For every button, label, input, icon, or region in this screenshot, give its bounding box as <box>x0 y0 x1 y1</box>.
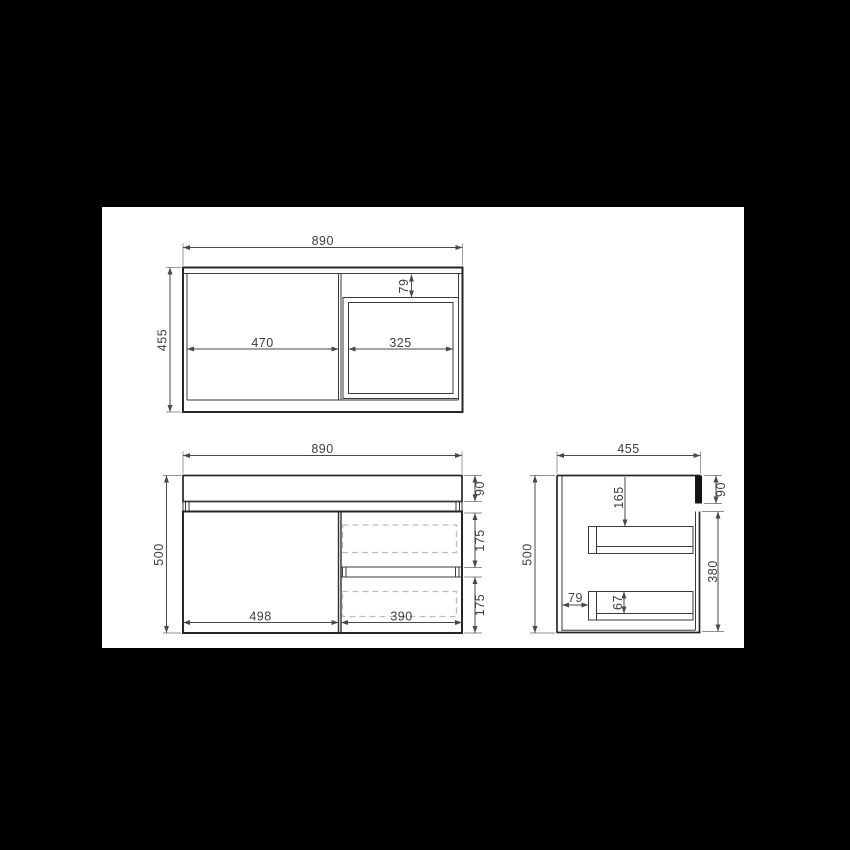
product-dimension-image: 890 455 470 325 79 890 <box>0 0 850 850</box>
lower-drawer-height-label: 175 <box>473 594 487 616</box>
drawer-top-offset-label: 165 <box>612 486 626 508</box>
front-view-height-label: 500 <box>152 543 166 565</box>
copyright-notice: Copyright @ 2025 My Depot Australia. Thi… <box>384 797 838 850</box>
benchtop-edge-profile <box>695 476 702 504</box>
side-view-height-label: 500 <box>521 543 535 565</box>
technical-drawing: 890 455 470 325 79 890 <box>0 0 850 850</box>
benchtop-height-label: 90 <box>473 481 487 496</box>
drawer-side-height-label: 67 <box>611 595 625 610</box>
top-view-outline <box>183 268 463 413</box>
basin-width-label: 325 <box>389 336 411 350</box>
drawer-back-offset-label: 79 <box>568 591 583 605</box>
top-view-depth-label: 455 <box>156 329 170 351</box>
side-benchtop-height-label: 90 <box>714 482 728 497</box>
front-view-width-label: 890 <box>311 442 333 456</box>
benchtop-outline <box>183 476 462 502</box>
top-view-width-label: 890 <box>312 234 334 248</box>
cabinet-body-height-label: 380 <box>706 560 720 582</box>
basin-offset-label: 79 <box>397 279 411 294</box>
side-view-depth-label: 455 <box>617 442 639 456</box>
left-section-width-label: 470 <box>251 336 273 350</box>
upper-drawer-height-label: 175 <box>473 529 487 551</box>
door-width-label: 498 <box>249 610 271 624</box>
drawer-width-label: 390 <box>390 610 412 624</box>
cabinet-body-outline <box>183 512 462 634</box>
